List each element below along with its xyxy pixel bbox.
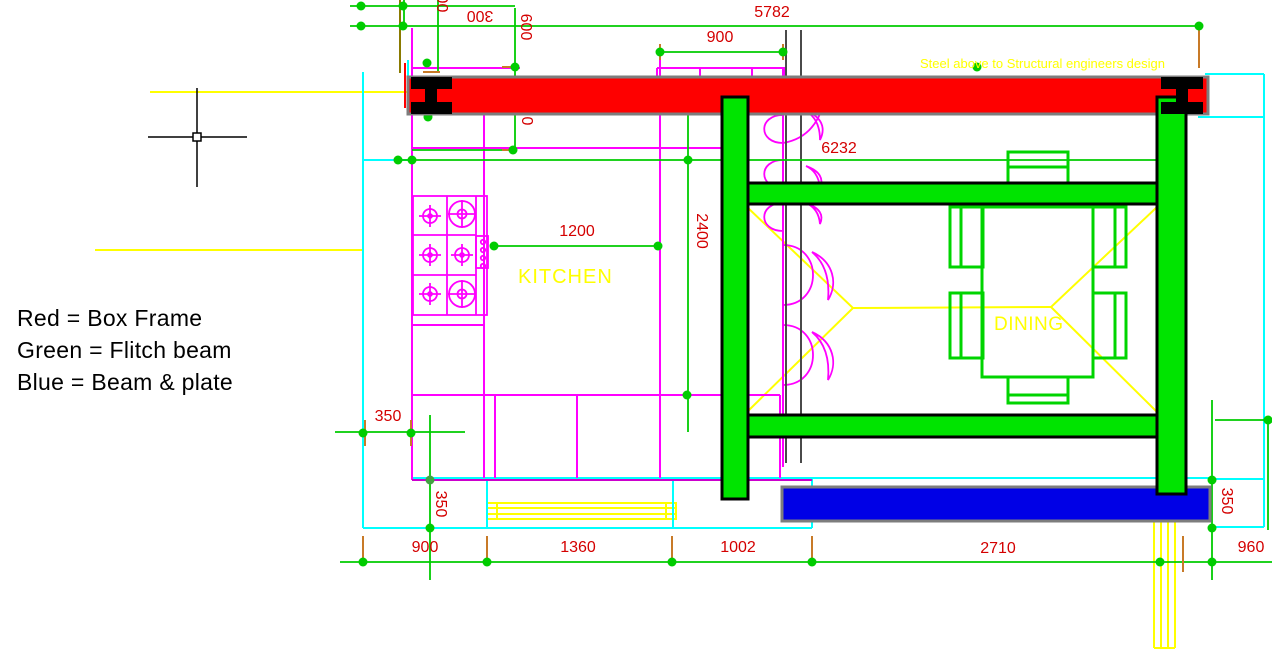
radiator[interactable]: [487, 503, 676, 519]
chair-right-1: [1093, 207, 1126, 267]
legend-blue: Blue = Beam & plate: [17, 366, 233, 398]
dim-960: 960: [1231, 539, 1271, 557]
burner-small-2: [419, 244, 441, 266]
dim-1360: 1360: [553, 539, 603, 557]
dim-2400: 2400: [692, 209, 710, 253]
legend-red: Red = Box Frame: [17, 302, 202, 334]
flitch-column-right[interactable]: [1157, 97, 1186, 494]
dining-table[interactable]: [982, 207, 1093, 377]
flitch-column-left[interactable]: [722, 97, 748, 499]
steel-note-label: Steel above to Structural engineers desi…: [920, 56, 1165, 71]
dim-900-bottom: 900: [405, 539, 445, 557]
burner-small-3: [451, 244, 473, 266]
burner-large-1: [448, 200, 476, 228]
dim-900-top: 900: [700, 29, 740, 47]
dim-600: 600: [516, 7, 534, 47]
burner-small-1: [419, 205, 441, 227]
burner-large-2: [448, 280, 476, 308]
downpipe-posts: [1154, 521, 1175, 648]
dining-label: DINING: [994, 314, 1064, 336]
cad-canvas: 300 300 600 5782 900 0 6232 2400 1200 35…: [0, 0, 1272, 655]
legend-green: Green = Flitch beam: [17, 334, 232, 366]
flitch-beam-upper[interactable]: [735, 183, 1158, 204]
beam-and-plate[interactable]: [782, 487, 1210, 521]
dim-350-left: 350: [368, 408, 408, 426]
chair-left-2: [950, 293, 983, 358]
dim-1002: 1002: [713, 539, 763, 557]
dim-2710: 2710: [973, 540, 1023, 558]
dim-1200: 1200: [547, 223, 607, 241]
dim-0: 0: [517, 111, 535, 131]
outline-lines-cyan: [363, 60, 1264, 528]
gas-hob[interactable]: [413, 196, 488, 315]
crosshair-cursor: [148, 88, 247, 187]
flitch-beam-lower[interactable]: [735, 415, 1158, 437]
reference-lines-yellow: [95, 92, 1175, 648]
dim-300: 300: [457, 6, 503, 24]
dim-300-clipped: 300: [432, 0, 450, 19]
burner-small-4: [419, 283, 441, 305]
dim-350-left-v: 350: [431, 484, 449, 524]
chair-left-1: [950, 207, 983, 267]
box-frame-beam[interactable]: [408, 77, 1208, 114]
dim-6232: 6232: [809, 140, 869, 158]
chair-right-2: [1093, 293, 1126, 358]
dim-5782: 5782: [742, 4, 802, 22]
chair-bottom: [1008, 377, 1068, 403]
dim-350-right: 350: [1217, 481, 1235, 521]
kitchen-label: KITCHEN: [518, 266, 613, 289]
